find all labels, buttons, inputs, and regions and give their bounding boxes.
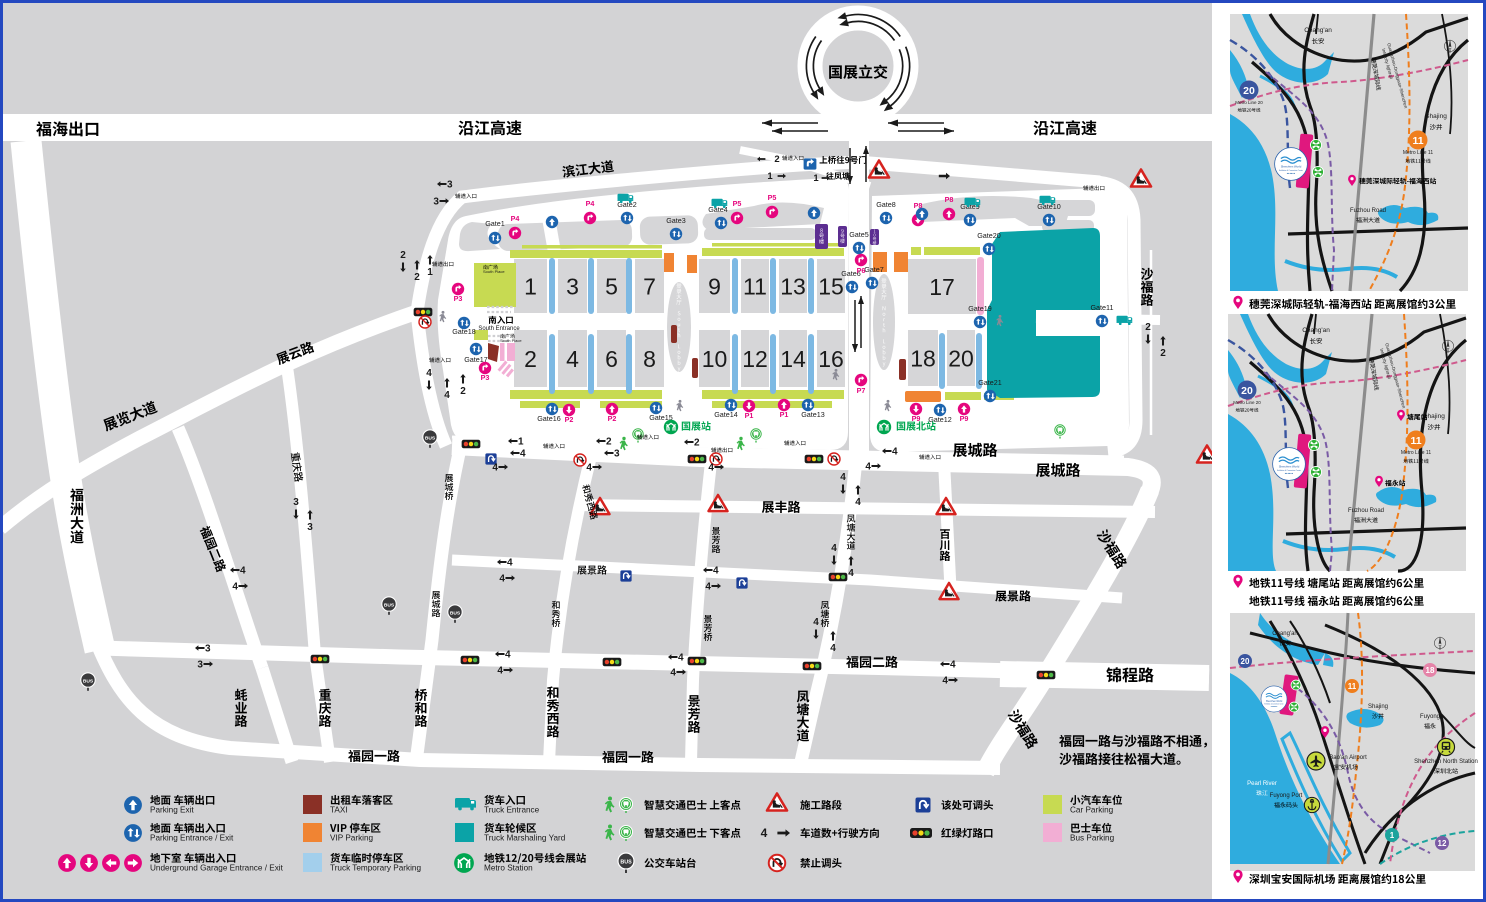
svg-text:1: 1 — [524, 273, 537, 299]
svg-text:Car Parking: Car Parking — [1070, 806, 1114, 815]
svg-text:4: 4 — [492, 463, 498, 474]
svg-text:2: 2 — [1145, 322, 1151, 333]
svg-text:2: 2 — [1160, 348, 1166, 359]
svg-text:6: 6 — [605, 346, 618, 372]
svg-text:4: 4 — [713, 566, 719, 577]
svg-text:2: 2 — [694, 438, 700, 449]
svg-text:Truck Entrance: Truck Entrance — [484, 806, 540, 815]
svg-text:3: 3 — [205, 644, 211, 655]
svg-text:P4: P4 — [511, 214, 520, 223]
svg-text:10: 10 — [702, 346, 728, 372]
svg-text:2: 2 — [414, 272, 420, 283]
svg-text:1: 1 — [1390, 831, 1395, 840]
svg-text:Bus Parking: Bus Parking — [1070, 834, 1115, 843]
svg-text:4: 4 — [566, 346, 579, 372]
svg-text:Gate8: Gate8 — [876, 200, 896, 209]
svg-text:Metro Line 11: Metro Line 11 — [1401, 450, 1431, 456]
svg-text:15: 15 — [818, 273, 844, 299]
svg-text:Parking Entrance / Exit: Parking Entrance / Exit — [150, 834, 234, 843]
svg-text:20: 20 — [1241, 657, 1250, 666]
svg-text:4: 4 — [855, 497, 861, 508]
svg-text:13: 13 — [780, 273, 806, 299]
svg-text:TAXI: TAXI — [330, 806, 348, 815]
svg-text:20: 20 — [1243, 85, 1255, 97]
svg-text:3: 3 — [614, 449, 620, 460]
svg-text:4: 4 — [831, 543, 837, 554]
svg-text:2: 2 — [524, 346, 537, 372]
svg-text:4: 4 — [678, 653, 684, 664]
svg-text:4: 4 — [950, 660, 956, 671]
svg-text:4: 4 — [848, 568, 854, 579]
svg-text:4: 4 — [499, 574, 505, 585]
svg-text:12: 12 — [1438, 839, 1447, 848]
svg-text:Gate19: Gate19 — [968, 304, 992, 313]
svg-text:7: 7 — [643, 273, 656, 299]
svg-text:Truck Marshaling Yard: Truck Marshaling Yard — [484, 834, 566, 843]
svg-text:11: 11 — [1348, 682, 1357, 691]
svg-text:South Entrance: South Entrance — [478, 326, 520, 332]
svg-text:4: 4 — [505, 650, 511, 661]
svg-text:4: 4 — [705, 582, 711, 593]
svg-text:4: 4 — [520, 449, 526, 460]
svg-text:Gate13: Gate13 — [801, 410, 825, 419]
svg-text:Gate11: Gate11 — [1090, 303, 1113, 312]
svg-text:P2: P2 — [608, 414, 617, 423]
svg-text:20: 20 — [1241, 385, 1253, 397]
svg-text:P3: P3 — [454, 294, 463, 303]
svg-text:9: 9 — [708, 273, 721, 299]
svg-text:8: 8 — [643, 346, 656, 372]
svg-text:P8: P8 — [945, 195, 954, 204]
svg-text:P5: P5 — [733, 199, 742, 208]
svg-text:4: 4 — [813, 617, 819, 628]
svg-text:3: 3 — [307, 522, 313, 533]
svg-text:16: 16 — [818, 346, 844, 372]
svg-text:Chang'an: Chang'an — [1304, 27, 1332, 34]
svg-text:3: 3 — [197, 660, 203, 671]
svg-text:4: 4 — [865, 462, 871, 473]
svg-text:Gate5: Gate5 — [849, 230, 869, 239]
svg-text:P5: P5 — [768, 193, 777, 202]
svg-text:4: 4 — [240, 566, 246, 577]
svg-text:Gate20: Gate20 — [977, 231, 1001, 240]
svg-text:P2: P2 — [565, 415, 574, 424]
svg-text:Gate21: Gate21 — [978, 378, 1002, 387]
svg-text:P3: P3 — [481, 373, 490, 382]
svg-text:Shenzhen North Station: Shenzhen North Station — [1414, 759, 1478, 765]
svg-text:P7: P7 — [857, 386, 866, 395]
svg-text:3: 3 — [566, 273, 579, 299]
svg-text:Gate3: Gate3 — [666, 216, 686, 225]
svg-text:4: 4 — [761, 826, 768, 840]
svg-text:2: 2 — [460, 386, 466, 397]
svg-text:P6: P6 — [857, 266, 866, 275]
svg-text:14: 14 — [780, 346, 806, 372]
svg-text:Chang'an: Chang'an — [1302, 327, 1330, 334]
svg-text:2: 2 — [606, 437, 612, 448]
svg-text:1: 1 — [767, 171, 773, 182]
svg-text:Fuyong: Fuyong — [1420, 714, 1440, 720]
svg-text:3: 3 — [433, 197, 439, 208]
svg-text:Pearl River: Pearl River — [1247, 781, 1277, 787]
svg-text:Metro Station: Metro Station — [484, 864, 533, 873]
svg-text:18: 18 — [910, 345, 936, 371]
svg-text:Metro Line 20: Metro Line 20 — [1235, 100, 1263, 105]
svg-text:4: 4 — [830, 643, 836, 654]
svg-text:South Place: South Place — [483, 269, 505, 274]
svg-text:1: 1 — [427, 267, 433, 278]
svg-text:South Place: South Place — [500, 338, 522, 343]
svg-text:Parking Exit: Parking Exit — [150, 806, 194, 815]
svg-text:4: 4 — [444, 390, 450, 401]
svg-text:3: 3 — [447, 180, 453, 191]
svg-text:P4: P4 — [586, 199, 595, 208]
svg-text:P1: P1 — [780, 410, 789, 419]
svg-text:2: 2 — [774, 154, 779, 165]
svg-text:11: 11 — [1410, 435, 1421, 447]
svg-text:Gate16: Gate16 — [537, 414, 561, 423]
svg-text:VIP Parking: VIP Parking — [330, 834, 374, 843]
svg-text:Bao'an Airport: Bao'an Airport — [1329, 755, 1367, 761]
svg-text:Fuzhou Road: Fuzhou Road — [1350, 208, 1386, 214]
svg-text:Metro Line 11: Metro Line 11 — [1403, 150, 1433, 156]
svg-text:3: 3 — [293, 497, 299, 508]
svg-text:4: 4 — [942, 676, 948, 687]
svg-text:Fuyong Port: Fuyong Port — [1270, 793, 1303, 799]
svg-text:Gate1: Gate1 — [485, 219, 505, 228]
svg-text:1: 1 — [518, 437, 524, 448]
svg-text:20: 20 — [948, 345, 974, 371]
svg-text:2: 2 — [400, 250, 406, 261]
svg-text:4: 4 — [670, 668, 676, 679]
svg-text:Metro Line 20: Metro Line 20 — [1233, 400, 1261, 405]
svg-text:17: 17 — [929, 274, 955, 300]
svg-text:Gate12: Gate12 — [928, 415, 952, 424]
svg-text:4: 4 — [586, 463, 592, 474]
svg-text:P9: P9 — [960, 414, 969, 423]
svg-text:Gate18: Gate18 — [452, 327, 476, 336]
svg-text:Underground Garage Entrance /: Underground Garage Entrance / Exit — [150, 864, 284, 873]
svg-text:Truck Temporary Parking: Truck Temporary Parking — [330, 864, 421, 873]
svg-text:Shajing: Shajing — [1368, 704, 1388, 710]
svg-text:Gate7: Gate7 — [864, 265, 884, 274]
svg-text:Shajing: Shajing — [1425, 113, 1447, 120]
svg-text:Gate10: Gate10 — [1037, 202, 1061, 211]
svg-text:4: 4 — [892, 447, 898, 458]
svg-text:P1: P1 — [745, 411, 754, 420]
svg-text:4: 4 — [426, 368, 432, 379]
svg-text:5: 5 — [605, 273, 618, 299]
svg-text:Gate14: Gate14 — [714, 410, 738, 419]
svg-text:4: 4 — [708, 463, 714, 474]
svg-text:11: 11 — [1412, 135, 1423, 147]
svg-text:4: 4 — [507, 558, 513, 569]
svg-text:Chang'an: Chang'an — [1272, 631, 1298, 637]
svg-text:4: 4 — [497, 666, 503, 677]
svg-text:18: 18 — [1426, 666, 1435, 675]
svg-text:1: 1 — [813, 173, 819, 184]
svg-text:11: 11 — [743, 273, 767, 299]
svg-text:4: 4 — [840, 472, 846, 483]
svg-text:Fuzhou Road: Fuzhou Road — [1348, 508, 1384, 514]
svg-text:4: 4 — [232, 582, 238, 593]
svg-text:12: 12 — [742, 346, 768, 372]
